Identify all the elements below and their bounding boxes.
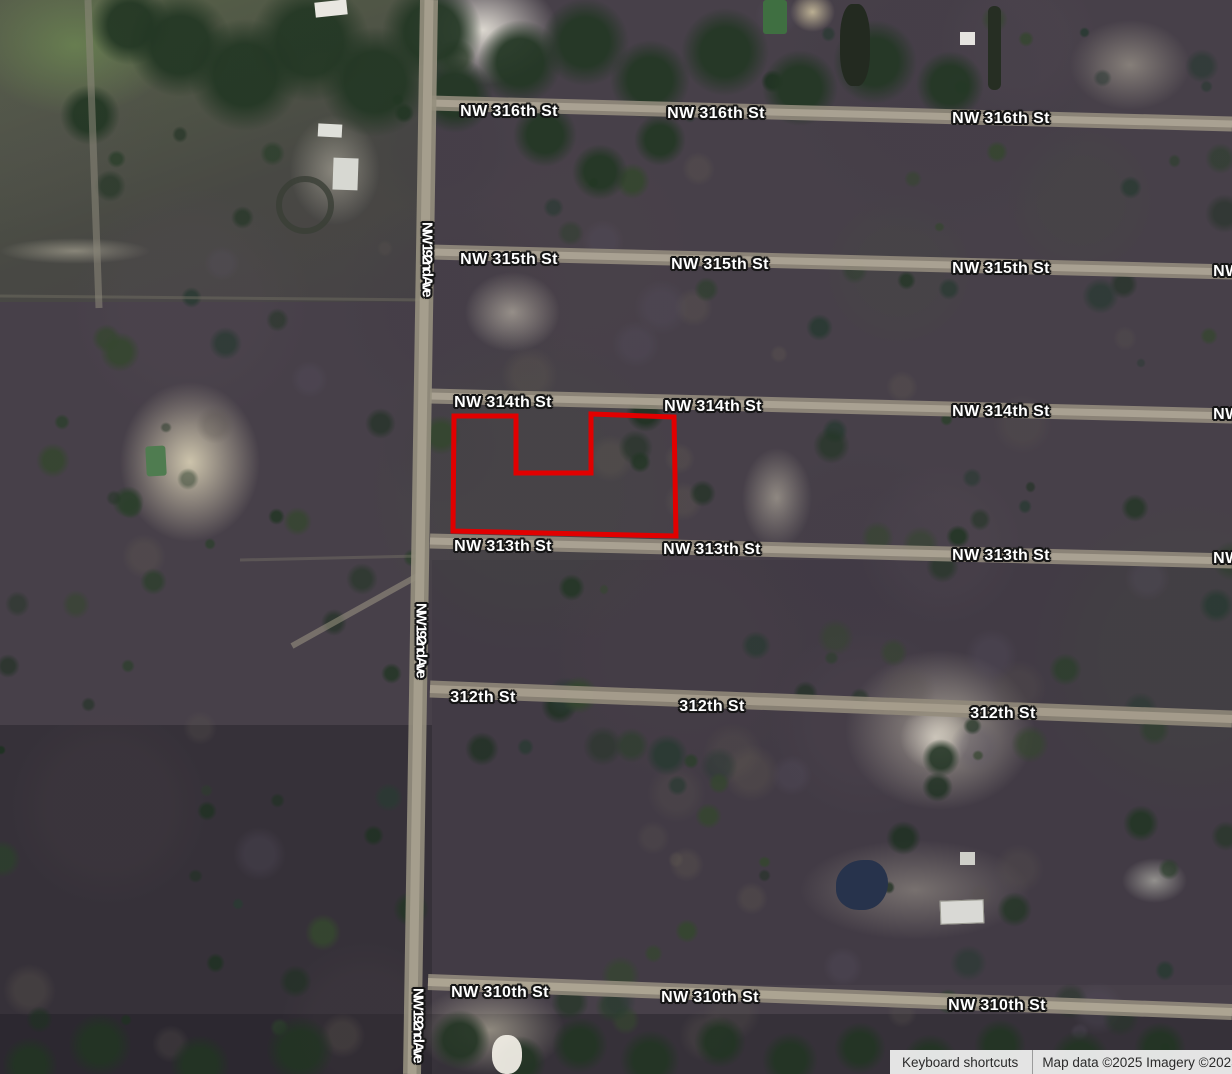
terrain-blob [950,945,987,982]
terrain-blob [60,85,120,145]
sand-clearing-large [120,382,260,542]
terrain-blob [233,827,287,881]
street-label: NW 313th St [952,547,1050,565]
map-attribution-bar: Keyboard shortcuts Map data ©2025 Imager… [890,1050,1232,1074]
terrain-blob [886,371,918,403]
bright-pasture [0,0,175,115]
terrain-blob [664,482,703,521]
terrain-blob [558,574,586,602]
terrain-blob [674,288,713,327]
terrain-blob [644,944,663,963]
terrain-blob [188,869,202,883]
green-pond [763,0,787,34]
terrain-blob [612,321,660,369]
road-312th-st [430,689,1232,719]
terrain-blob [694,1016,746,1068]
sand-patch [845,650,1035,810]
terrain-blob [362,328,690,656]
terrain-blob [1136,358,1146,368]
terrain-blob [1006,125,1158,277]
terrain-blob [582,220,624,262]
map-data-imagery-text: Map data ©2025 Imagery ©2025 [1033,1055,1232,1070]
terrain-blob [1093,69,1111,87]
terrain-blob [119,495,143,519]
terrain-blob [197,801,217,821]
terrain-blob [994,844,1044,894]
scrub-dark-bottomleft [0,725,432,1074]
terrain-blob [761,70,784,93]
terrain-blob [599,584,609,594]
terrain-blob [172,126,189,143]
terrain-blob [152,1025,190,1063]
terrain-blob [417,57,493,133]
terrain-blob [551,983,589,1021]
terrain-blob [595,990,628,1023]
terrain-blob [986,141,1008,163]
terrain-blob [206,953,226,973]
imagery-text: Imagery ©2025 [1146,1055,1232,1070]
terrain-blob [1018,499,1032,513]
terrain-blob [393,891,429,927]
terrain-blob [196,406,234,444]
terrain-blob [647,764,706,823]
terrain-blob [793,681,818,706]
terrain-blob [121,659,135,673]
road-nw-310th-st-center [428,982,1232,1012]
terrain-blob [430,1010,490,1070]
terrain-blob [572,144,628,200]
street-label: NW 315th St [1213,263,1232,281]
terrain-blob [107,150,125,168]
terrain-blob [981,6,1008,33]
terrain-blob [513,103,577,167]
terrain-blob [751,252,763,264]
terrain-blob [92,324,120,352]
terrain-blob [291,361,328,398]
street-label: NW 315th St [952,260,1050,278]
terrain-blob [943,70,970,97]
map-data-text: Map data ©2025 [1042,1055,1142,1070]
street-label: NW 314th St [1213,406,1232,424]
terrain-blob [54,414,70,430]
terrain-blob [708,772,731,795]
terrain-blob [5,591,30,616]
tree-row [988,6,1001,90]
terrain-blob [922,772,952,802]
terrain-blob [557,220,583,246]
terrain-blob [160,422,172,434]
terrain-blob [501,347,557,403]
terrain-blob [770,345,788,363]
terrain-blob [634,114,686,166]
road-nw-313th-st-center [430,541,1232,561]
terrain-blob [68,1013,132,1074]
street-label: NW 315th St [460,251,558,269]
street-label: NW 314th St [664,398,762,416]
terrain-blob [860,463,1023,626]
terrain-blob [100,332,140,372]
terrain-blob [266,308,290,332]
terrain-blob [1053,983,1089,1019]
terrain-blob [646,734,688,776]
terrain-blob [320,27,430,137]
terrain-blob [283,507,312,536]
terrain-blob [2,1037,58,1074]
terrain-blob [546,677,585,716]
satellite-map[interactable]: NW 316th StNW 316th StNW 316th StNW 315t… [0,0,1232,1074]
terrain-blob [128,0,232,97]
road-nw-315th-st [430,252,1232,272]
terrain-blob [1123,692,1158,727]
terrain-blob [601,956,640,995]
terrain-blob [611,1005,640,1034]
terrain-blob [963,717,982,736]
road-nw-315th-st-center [430,252,1232,272]
terrain-blob [1121,494,1149,522]
terrain-blob [120,1014,132,1026]
terrain-blob [902,526,938,562]
terrain-blob [1109,270,1138,299]
parcel-outline [453,414,676,536]
parcel-layer [0,0,1232,1074]
terrain-blob [321,609,347,635]
terrain-blob [478,20,562,104]
terrain-blob [614,728,649,763]
keyboard-shortcuts-link[interactable]: Keyboard shortcuts [890,1055,1032,1070]
terrain-blob [90,0,170,65]
terrain-blob [0,0,182,233]
terrain-blob [1071,982,1124,1035]
terrain-blob [1158,858,1180,880]
sand-patch [790,0,835,32]
street-label: NW 314th St [454,394,552,412]
terrain-blob [541,0,629,86]
terrain-blob [1079,27,1090,38]
terrain-blob [887,998,917,1028]
terrain-blob [968,884,992,908]
terrain-blob [341,72,387,118]
terrain-blob [938,278,960,300]
terrain-blob [936,989,960,1013]
terrain-blob [1011,725,1049,763]
terrain-blob [965,629,1018,682]
terrain-blob [636,821,670,855]
terrain-blob [547,518,817,788]
terrain-blob [583,726,623,766]
terrain-blob [972,750,984,762]
road-nw-316th-st [430,103,1232,124]
terrain-blob [112,486,144,518]
terrain-blob [266,1016,334,1074]
terrain-blob [8,706,209,907]
terrain-blob [681,8,769,96]
street-label: NW 314th St [952,403,1050,421]
terrain-blob [437,39,476,78]
sand-patch [465,272,560,352]
terrain-blob [1125,556,1170,601]
labels-layer: NW 316th StNW 316th StNW 316th StNW 315t… [0,0,1232,1074]
terrain-blob [822,194,976,348]
terrain-blob [946,525,970,549]
terrain-blob [1205,143,1232,174]
terrain-blob [1199,588,1232,623]
terrain-blob [861,521,893,553]
terrain-blob [1123,805,1160,842]
building [960,32,975,45]
white-sand-spot [492,1035,522,1074]
street-label: 312th St [679,698,744,716]
terrain-blob [879,638,908,667]
avenue-label: NW 192nd Ave [413,603,430,676]
terrain-blob [683,753,699,769]
terrain-blob [950,721,1001,772]
terrain-blob [762,50,838,126]
terrain-blob [886,821,921,856]
terrain-blob [1029,494,1232,817]
terrain-blob [279,965,312,998]
street-label: NW 313th St [1213,550,1232,568]
terrain-blob [1185,49,1219,83]
terrain-blob [833,20,917,104]
terrain-blob [454,131,696,373]
terrain-blob [778,0,1099,239]
terrain-blob [587,435,634,482]
road-nw-192nd-ave-center [412,0,429,1074]
terrain-blob [200,784,213,797]
sand-patch [290,115,380,225]
terrain-blob [684,111,697,124]
terrain-blob [204,538,216,550]
terrain-blob [209,327,241,359]
street-label: NW 315th St [671,256,769,274]
road-nw-313th-st [430,541,1232,561]
dark-pond [840,4,870,86]
terrain-blob [1205,194,1232,233]
street-label: NW 316th St [952,110,1050,128]
terrain-blob [679,1009,732,1062]
terrain-blob [758,869,771,882]
terrain-blob [813,427,850,464]
sand-patch [415,985,565,1074]
terrain-blob [204,246,239,281]
road-nw-192nd-ave [412,0,429,1074]
terrain-blob [841,257,868,284]
vegetation-layer [0,0,1232,1074]
terrain-blob [81,697,96,712]
sand-patches [0,0,1232,1074]
sand-patch [1070,20,1190,110]
terrain-blob [560,676,598,714]
terrain-blob [667,775,689,797]
terrain-blob [675,919,699,943]
street-label: NW 313th St [663,541,761,559]
trail [292,574,421,646]
sand-patch [408,0,558,85]
terrain-blob [335,189,573,427]
terrain-blob [260,141,285,166]
road-312th-st-center [430,689,1232,719]
terrain-blob [140,568,167,595]
terrain-blob [904,170,922,188]
terrain-blob [62,590,91,619]
terrain-blob [629,451,652,474]
terrain-blob [232,898,244,910]
street-label: NW 310th St [451,984,549,1002]
terrain-blob [1212,541,1232,581]
terrain-blob [0,745,6,755]
terrain-tints [0,0,1232,1074]
terrain-blob [600,984,636,1020]
terrain-blob [806,314,833,341]
sand-patch [0,238,150,264]
road-nw-314th-st [430,396,1232,416]
terrain-blob [268,508,285,525]
terrain-blob [541,688,577,724]
street-label: NW 313th St [454,538,552,556]
terrain-blob [757,443,966,652]
terrain-blob [1070,1023,1089,1042]
terrain-blob [618,430,653,465]
terrain-blob [883,881,895,893]
terrain-blob [403,549,421,567]
terrain-blob [278,940,452,1074]
terrain-blob [346,563,378,595]
terrain-blob [552,1017,608,1073]
terrain-blob [850,688,869,707]
street-label: NW 316th St [460,103,558,121]
terrain-blob [1102,1000,1139,1037]
terrain-blob [203,15,224,36]
terrain-blob [824,651,839,666]
terrain-blob [305,914,341,950]
terrain-blob [3,964,56,1017]
terrain-blob [382,0,482,82]
building [940,899,985,925]
terrain-blob [821,26,837,42]
terrain-blob [1049,653,1081,685]
terrain-blob [580,171,596,187]
terrain-blob [664,443,695,474]
terrain-blob [703,983,762,1042]
terrain-blob [122,534,167,579]
terrain-blob [700,747,738,785]
terrain-blob [817,619,854,656]
street-label: 312th St [450,689,515,707]
terrain-blob [695,803,722,830]
terrain-blob [990,660,1046,716]
terrain-blob [1113,326,1137,350]
terrain-blob [170,1035,230,1074]
terrain-blob [953,79,970,96]
terrain-blob [1200,80,1213,93]
terrain-blob [394,103,414,123]
terrain-blob [183,711,216,744]
terrain-blob [916,51,984,119]
terrain-blob [421,415,461,455]
terrain-blob [494,1036,546,1074]
terrain-blob [823,947,863,987]
terrain-blob [1168,154,1181,167]
terrain-blob [1211,821,1232,851]
terrain-blob [543,197,564,218]
road-nw-316th-st-center [430,103,1232,124]
terrain-blob [922,739,960,777]
roads-layer [0,0,1232,1074]
terrain-blob [374,783,403,812]
terrain-blob [735,882,768,915]
avenue-label: NW 192nd Ave [419,222,436,295]
terrain-blob [270,1018,289,1037]
terrain-blob [36,443,71,478]
terrain-blob [620,1030,680,1074]
terrain-blob [106,490,122,506]
terrain-blob [610,40,690,120]
terrain-blob [391,93,404,106]
terrain-blob [770,626,963,819]
sand-patch [900,705,970,770]
terrain-blob [669,847,704,882]
sand-patch [800,840,1030,940]
fence-line [0,296,432,300]
building [332,158,358,191]
terrain-blob [634,280,689,335]
terrain-blob [1025,481,1037,493]
terrain-blob [26,1006,53,1033]
terrain-blob [1082,278,1119,315]
terrain-blob [741,631,770,660]
terrain-blob [877,662,937,722]
terrain-blob [181,287,202,308]
terrain-blob [0,654,20,678]
terrain-blob [381,663,402,684]
terrain-blob [615,163,651,199]
terrain-blob [993,395,1052,454]
terrain-blob [926,550,960,584]
building [960,852,975,865]
sand-patch [742,448,812,548]
terrain-blob [694,277,719,302]
terrain-blob [758,856,771,869]
terrain-blob [377,240,393,256]
terrain-blob [934,222,944,232]
terrain-blob [962,468,982,488]
terrain-blob [94,170,126,202]
terrain-blob [1138,713,1171,746]
street-label: 312th St [970,705,1035,723]
terrain-blob [364,71,513,220]
terrain-blob [1119,176,1142,199]
terrain-blob [517,738,535,756]
terrain-blob [755,0,798,37]
terrain-blob [378,384,502,508]
terrain-blob [1155,960,1176,981]
terrain-blob [70,185,311,426]
building [318,123,343,137]
terrain-blob [588,177,599,188]
gray-pond [1122,858,1187,903]
avenue-label: NW 192nd Ave [410,988,427,1061]
terrain-blob [940,413,953,426]
pasture-area [0,0,432,302]
scrub-tint-rightmid [432,560,1232,985]
terrain-blob [320,1013,365,1058]
terrain-blob [177,468,199,490]
terrain-blob [689,480,716,507]
terrain-blob [682,152,715,185]
terrain-blob [1018,31,1034,47]
street-label: NW 310th St [948,997,1046,1015]
terrain-blob [822,418,848,444]
